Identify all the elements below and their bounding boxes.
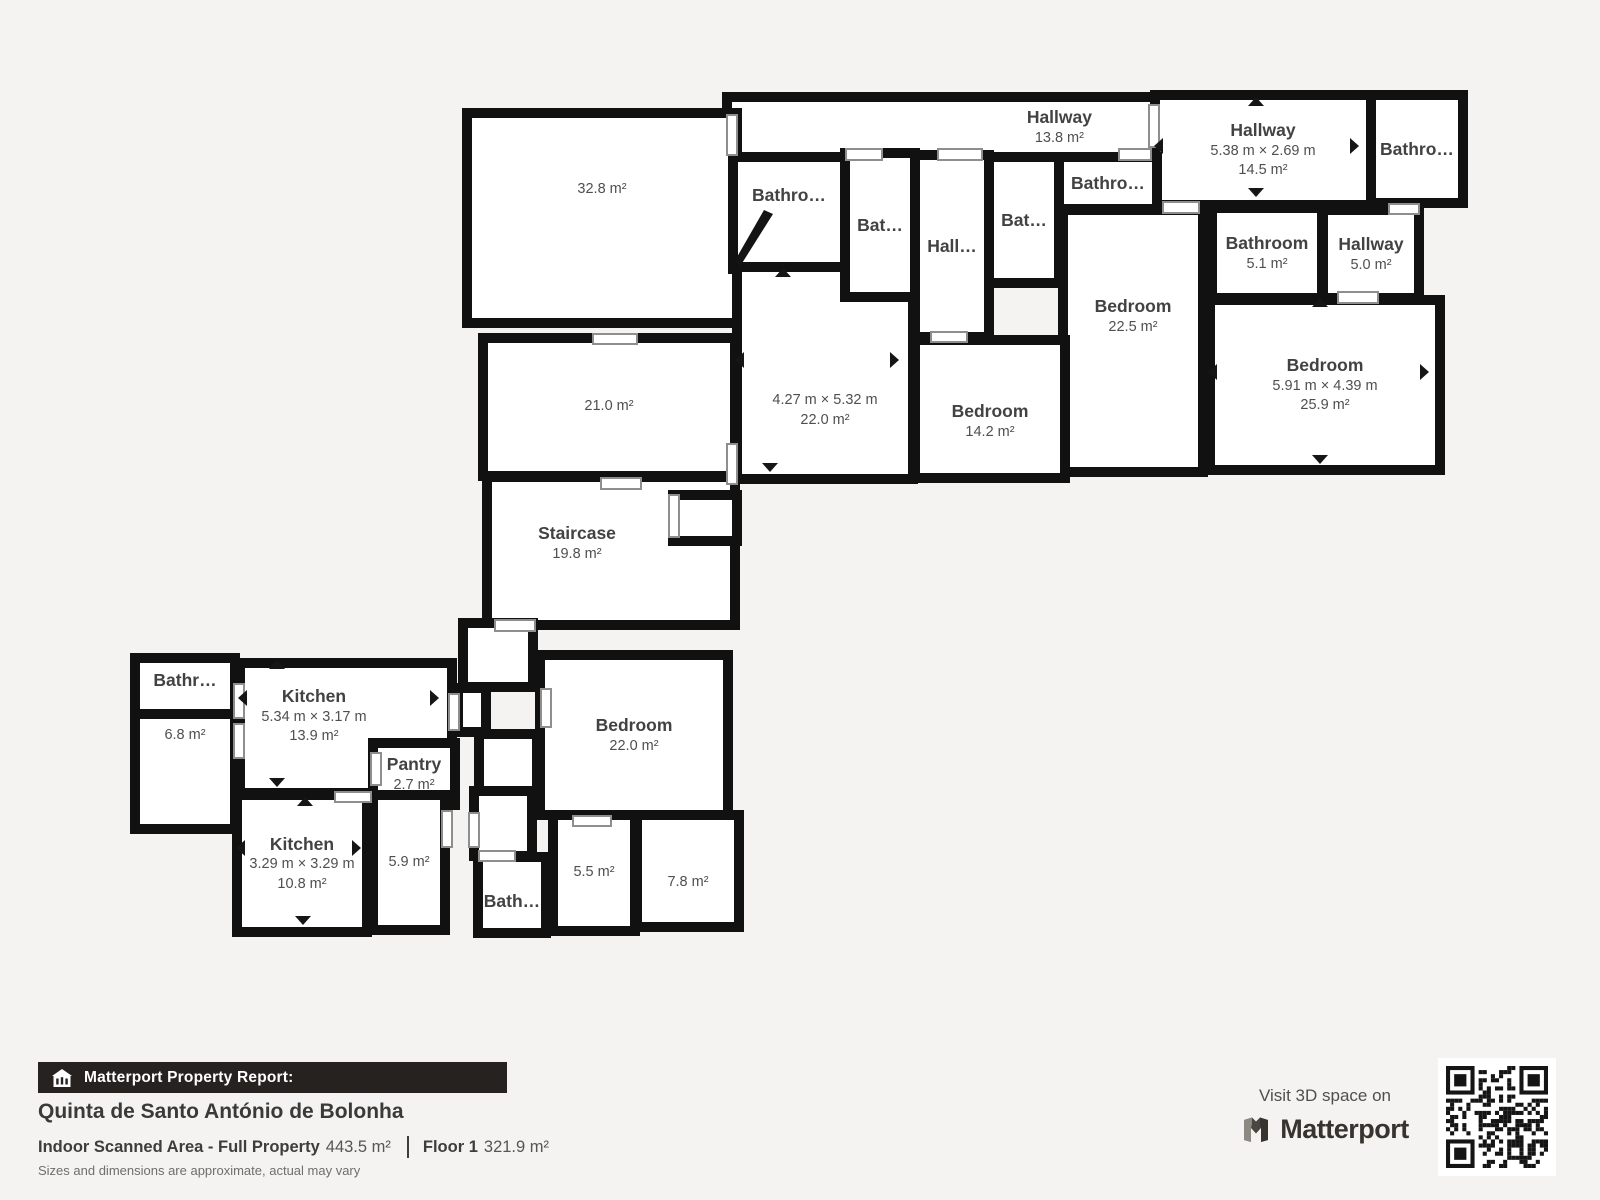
room-label: 7.8 m²: [667, 873, 708, 893]
property-report-icon: [52, 1069, 72, 1087]
door-opening: [370, 752, 382, 786]
room-bedroom-220: Bedroom 22.0 m²: [535, 650, 733, 820]
room-label: 4.27 m × 5.32 m 22.0 m²: [772, 391, 877, 430]
room-label: Bathro…: [1380, 138, 1454, 161]
room-bedroom-259: Bedroom 5.91 m × 4.39 m 25.9 m²: [1205, 295, 1445, 475]
room-bedroom-225: Bedroom 22.5 m²: [1058, 205, 1208, 477]
door-opening: [600, 477, 642, 490]
room-label: Pantry 2.7 m²: [387, 753, 441, 795]
room-label: 32.8 m²: [577, 180, 626, 200]
door-opening: [441, 810, 453, 848]
room-label: 6.8 m²: [164, 726, 205, 746]
room-78: 7.8 m²: [632, 810, 744, 932]
door-opening: [937, 148, 983, 161]
measure-arrow-left: [238, 690, 247, 706]
door-opening: [468, 812, 480, 848]
door-opening: [726, 443, 738, 485]
property-title: Quinta de Santo António de Bolonha: [38, 1100, 404, 1124]
door-opening: [668, 494, 680, 538]
room-kitchen-108: Kitchen 3.29 m × 3.29 m 10.8 m²: [232, 790, 372, 937]
measure-arrow-right: [890, 352, 899, 368]
room-label: Bathro…: [1071, 172, 1145, 195]
door-opening: [494, 619, 536, 632]
area-stats: Indoor Scanned Area - Full Property 443.…: [38, 1136, 563, 1158]
room-hallway-small: Hall…: [910, 150, 994, 342]
measure-arrow-right: [352, 840, 361, 856]
matterport-wordmark: Matterport: [1280, 1114, 1409, 1145]
room-bathroom-51: Bathroom 5.1 m²: [1207, 203, 1327, 303]
measure-arrow-right: [1420, 364, 1429, 380]
room-label: Bedroom 14.2 m²: [952, 400, 1029, 442]
measure-arrow-down: [762, 463, 778, 472]
measure-arrow-right: [1350, 138, 1359, 154]
measure-arrow-up: [775, 268, 791, 277]
floor-label: Floor 1: [423, 1138, 478, 1157]
room-label: 21.0 m²: [584, 397, 633, 417]
door-opening: [592, 333, 638, 345]
room-label: Bat…: [1001, 209, 1047, 232]
room-55: 5.5 m²: [548, 810, 640, 936]
door-opening: [845, 148, 883, 161]
room-label: Hallway 5.0 m²: [1338, 233, 1403, 275]
door-opening: [1118, 148, 1152, 161]
measure-arrow-left: [1154, 138, 1163, 154]
door-opening: [726, 114, 738, 156]
room-label: Bedroom 22.0 m²: [596, 714, 673, 756]
measure-arrow-left: [236, 840, 245, 856]
room-label: Bedroom 22.5 m²: [1095, 295, 1172, 337]
brand-row: Matterport: [1241, 1114, 1409, 1145]
scanned-area-value: 443.5 m²: [326, 1138, 391, 1157]
room-label: Hallway 13.8 m²: [1027, 106, 1092, 148]
room-bathroom-bottom: Bath…: [473, 852, 551, 938]
door-opening: [233, 723, 245, 759]
measure-arrow-left: [735, 352, 744, 368]
room-label: Hallway 5.38 m × 2.69 m 14.5 m²: [1210, 119, 1315, 181]
door-swing-line: [737, 210, 779, 272]
room-210: 21.0 m²: [478, 333, 740, 481]
door-opening: [448, 693, 460, 731]
door-opening: [334, 791, 372, 803]
room-328: 32.8 m²: [462, 108, 742, 328]
room-label: Bedroom 5.91 m × 4.39 m 25.9 m²: [1272, 354, 1377, 416]
visit-3d-text: Visit 3D space on: [1259, 1086, 1391, 1106]
room-label: 5.9 m²: [388, 853, 429, 873]
room-68: 6.8 m²: [130, 709, 240, 834]
door-opening: [930, 331, 968, 343]
room-59: 5.9 m²: [368, 790, 450, 935]
matterport-floorplan-report: { "floorplan": { "rooms": [ {"id":"hallw…: [0, 0, 1600, 1200]
room-bedroom-142: Bedroom 14.2 m²: [910, 335, 1070, 483]
measure-arrow-down: [295, 916, 311, 925]
room-label: Staircase 19.8 m²: [538, 522, 616, 564]
room-label: Bath…: [484, 890, 540, 913]
measure-arrow-right: [430, 690, 439, 706]
brand-block: Visit 3D space on Matterport: [1225, 1086, 1425, 1145]
door-opening: [540, 688, 552, 728]
matterport-logo-icon: [1241, 1115, 1271, 1145]
door-opening: [572, 815, 612, 827]
room-label: Hall…: [927, 235, 977, 258]
measure-arrow-up: [297, 797, 313, 806]
room-bathroom-2: Bat…: [840, 148, 920, 302]
qr-code: [1438, 1058, 1556, 1176]
measure-arrow-up: [1248, 97, 1264, 106]
report-bar: Matterport Property Report:: [38, 1062, 507, 1093]
room-label: Bat…: [857, 214, 903, 237]
floor-value: 321.9 m²: [484, 1138, 549, 1157]
room-label: Bathr…: [153, 669, 216, 692]
floor-plan: Hallway 13.8 m² 32.8 m² Hallway 5.38 m ×…: [0, 0, 1600, 1000]
measure-arrow-left: [1208, 364, 1217, 380]
door-opening: [1162, 201, 1200, 214]
measure-arrow-up: [269, 660, 285, 669]
room-label: Bathroom 5.1 m²: [1226, 232, 1309, 274]
measure-arrow-down: [1312, 455, 1328, 464]
room-label: 5.5 m²: [573, 863, 614, 883]
door-opening: [1337, 291, 1379, 304]
room-label: Kitchen 3.29 m × 3.29 m 10.8 m²: [249, 833, 354, 895]
room-hallway-50: Hallway 5.0 m²: [1318, 205, 1424, 303]
divider: [407, 1136, 409, 1158]
room-label: Kitchen 5.34 m × 3.17 m 13.9 m²: [261, 685, 366, 747]
scanned-area-label: Indoor Scanned Area - Full Property: [38, 1138, 320, 1157]
measure-arrow-down: [269, 778, 285, 787]
room-label: Bathro…: [752, 184, 826, 207]
measure-arrow-up: [1312, 298, 1328, 307]
report-bar-label: Matterport Property Report:: [84, 1069, 294, 1087]
room-bathroom-top-right: Bathro…: [1366, 90, 1468, 208]
room-bathroom-3: Bat…: [984, 152, 1064, 288]
door-opening: [478, 850, 516, 862]
door-opening: [1388, 203, 1420, 215]
measure-arrow-down: [1248, 188, 1264, 197]
disclaimer-text: Sizes and dimensions are approximate, ac…: [38, 1163, 360, 1178]
